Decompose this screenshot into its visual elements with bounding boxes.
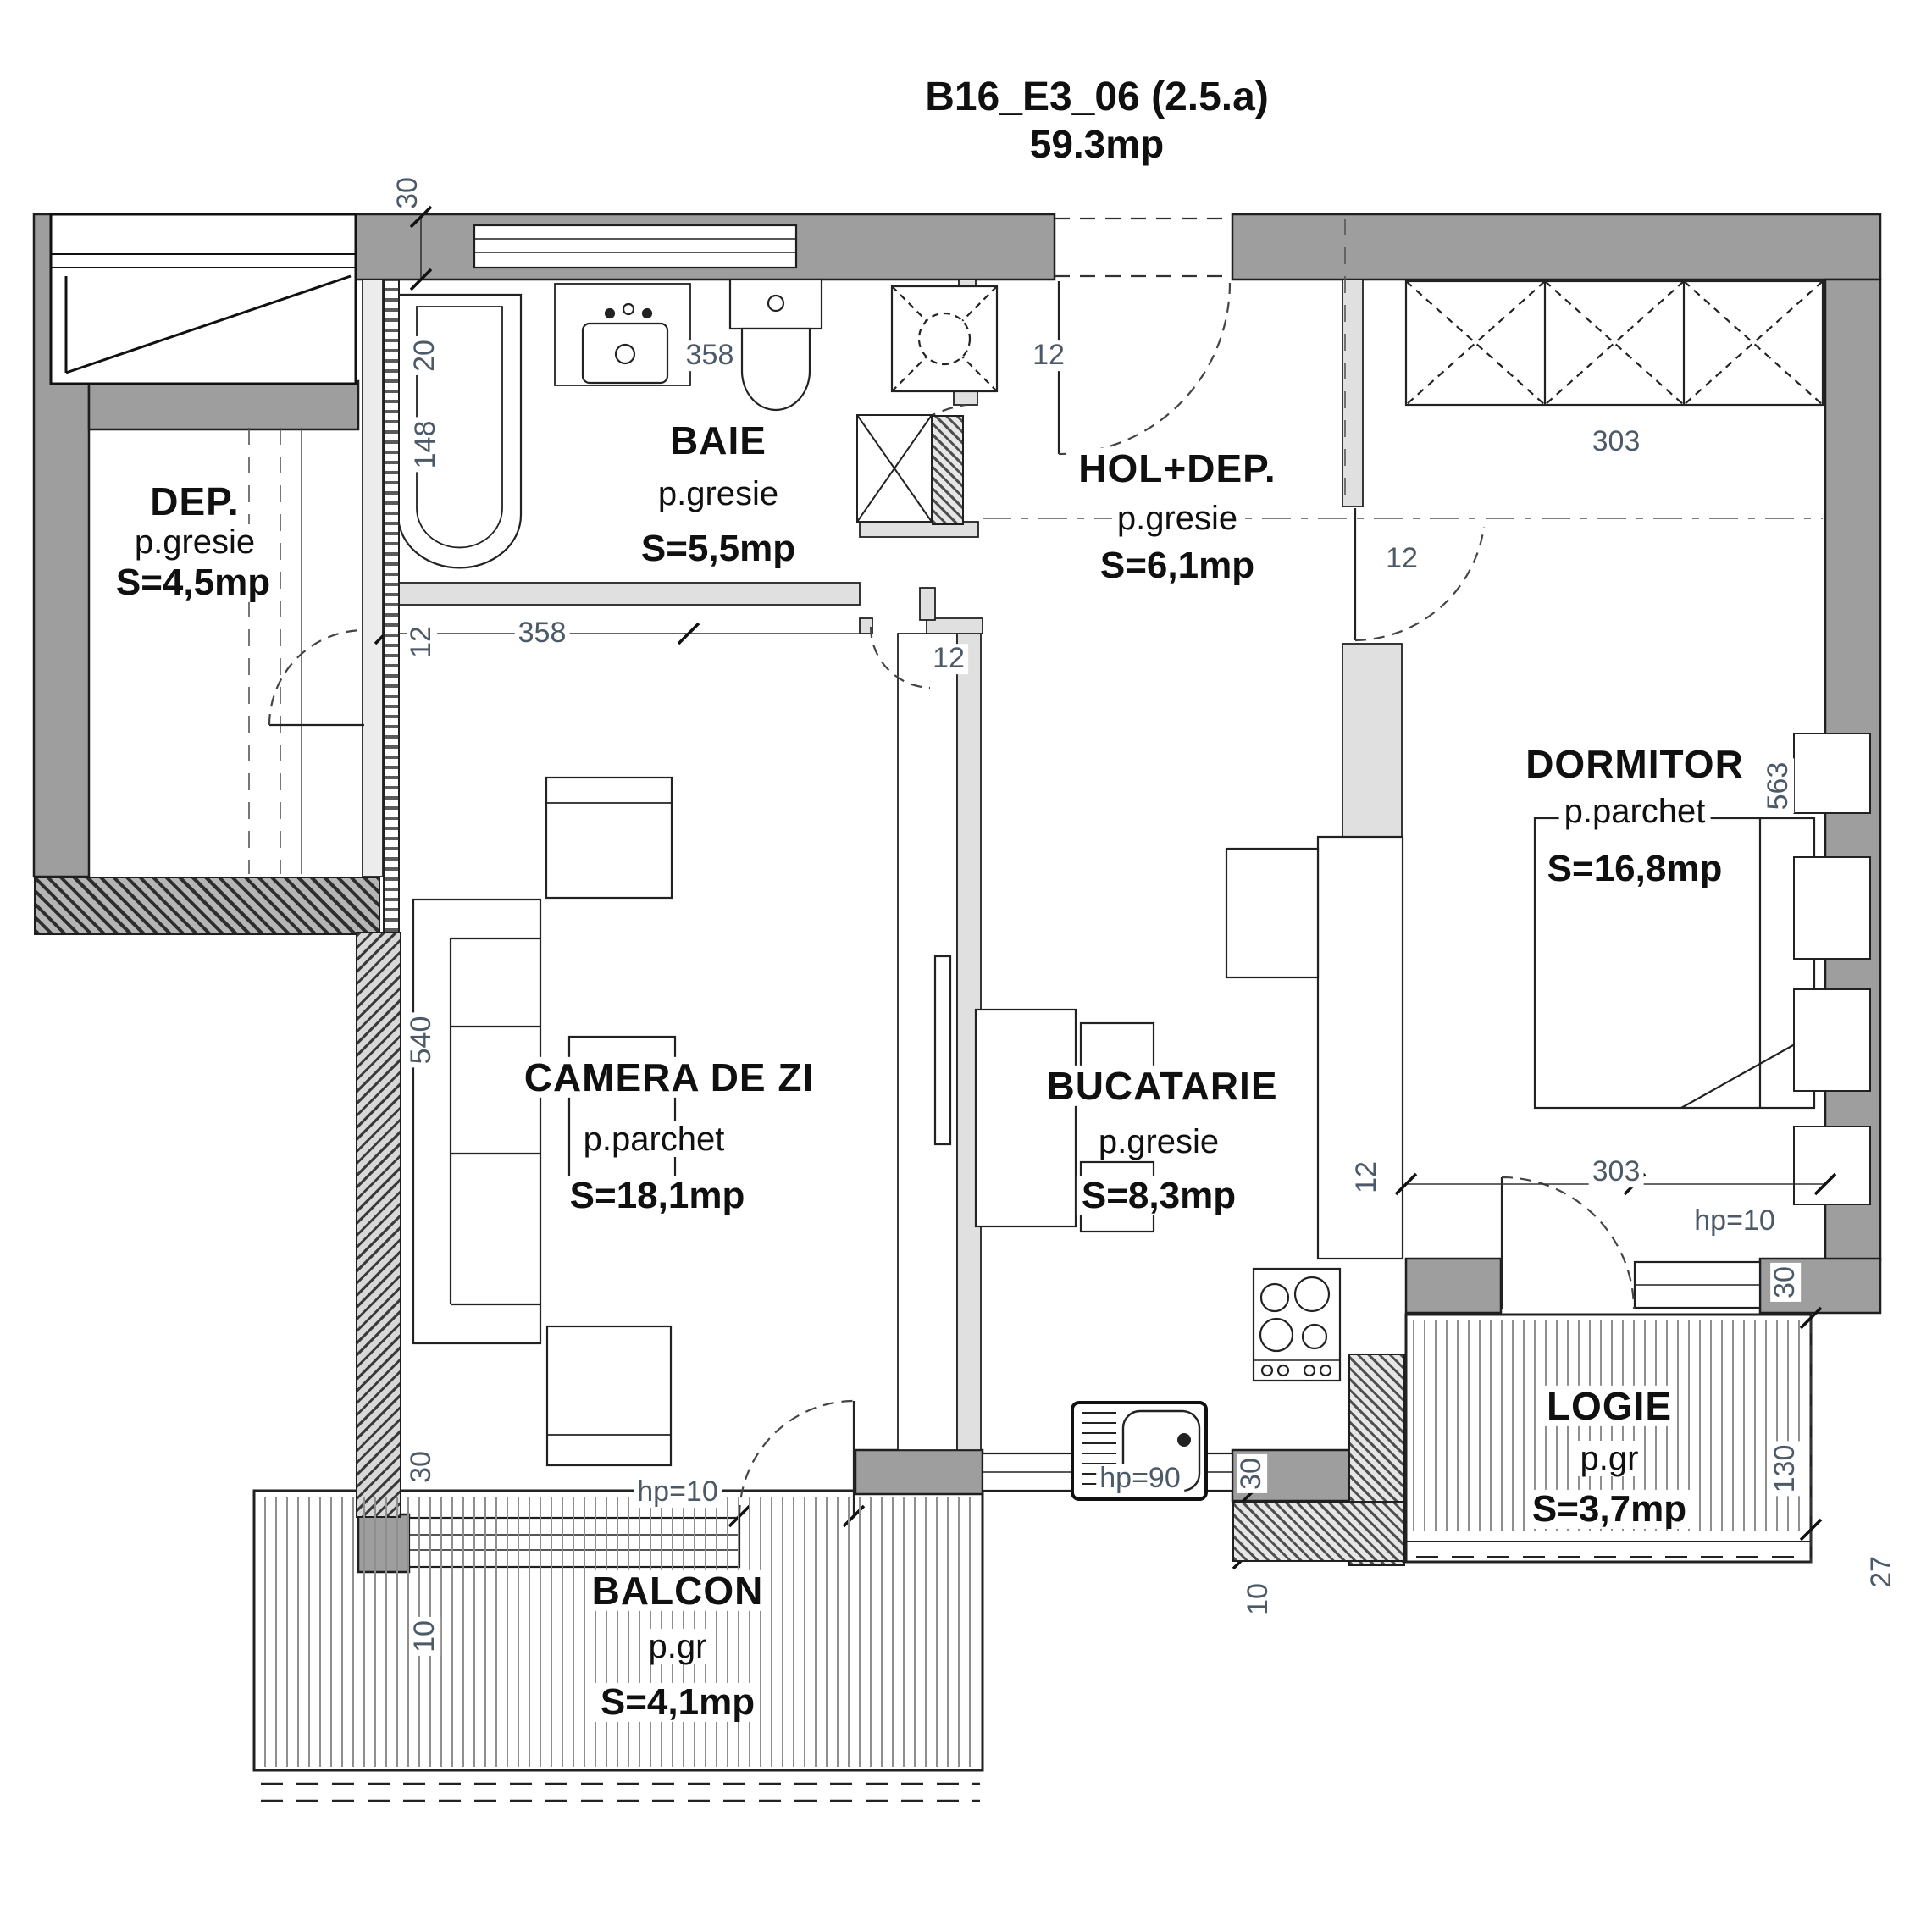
room-area-logie: S=3,7mp [1527,1490,1691,1529]
hatched-wall-living-left [356,932,401,1518]
dim-wardrobe-303: 303 [1589,427,1644,457]
room-floor-dep: p.gresie [130,524,260,560]
room-floor-baie: p.gresie [653,476,783,512]
room-label-logie: LOGIE [1542,1386,1677,1426]
room-label-dormitor: DORMITOR [1520,744,1749,784]
dim-dorm-door-12: 12 [1382,544,1421,574]
dim-living-30: 30 [407,1448,437,1486]
room-label-dep: DEP. [145,481,244,522]
room-label-bucatarie: BUCATARIE [1041,1066,1282,1106]
dim-living-358: 358 [515,618,570,649]
dim-bath-wall-12: 12 [407,623,437,662]
room-area-baie: S=5,5mp [636,529,800,568]
room-area-balcon: S=4,1mp [595,1683,760,1722]
room-area-dormitor: S=16,8mp [1542,850,1728,888]
dim-tub-148: 148 [411,418,441,473]
dim-wall-top-left: 30 [393,174,423,213]
dim-kitchen-wall-12: 12 [1352,1158,1382,1197]
sofa [413,900,540,1343]
dim-dorm-563: 563 [1763,759,1794,814]
balcony-decking [264,1497,980,1767]
room-floor-camera: p.parchet [578,1121,730,1157]
room-label-balcon: BALCON [587,1570,769,1611]
stairwell [51,214,356,384]
room-floor-balcon: p.gr [644,1629,712,1664]
wardrobe [1406,281,1823,405]
dim-dorm-hp10: hp=10 [1691,1206,1779,1237]
stove [1254,1269,1340,1381]
room-area-bucatarie: S=8,3mp [1077,1176,1241,1215]
room-area-hol: S=6,1mp [1095,546,1259,585]
dim-living-hp10: hp=10 [634,1477,722,1508]
insulation-strip [383,280,400,932]
dim-dorm-303: 303 [1589,1157,1644,1187]
dim-bath-20: 20 [410,336,440,375]
room-label-baie: BAIE [665,420,772,461]
dim-logie-27: 27 [1867,1553,1897,1592]
dim-balcon-10: 10 [410,1617,440,1656]
dim-kitchen-10: 10 [1243,1580,1274,1619]
dim-living-540: 540 [407,1013,437,1068]
armchair-bottom [547,1326,671,1465]
dim-kitchen-30: 30 [1237,1454,1267,1493]
dim-sink-hp90: hp=90 [1096,1464,1184,1494]
room-floor-logie: p.gr [1575,1441,1644,1476]
dim-logie-130: 130 [1770,1442,1801,1497]
dim-kitchen-door-12: 12 [929,644,968,674]
dim-logie-30: 30 [1770,1263,1801,1302]
room-area-camera: S=18,1mp [565,1176,750,1215]
room-area-dep: S=4,5mp [111,563,275,602]
dim-bath-358: 358 [683,340,738,371]
tv [935,956,950,1144]
vent-shaft [857,415,932,522]
toilet [730,280,822,410]
shower [892,286,997,391]
armchair-top [546,778,672,898]
room-floor-hol: p.gresie [1112,501,1243,536]
room-label-camera: CAMERA DE ZI [519,1057,820,1098]
hatched-wall-kitchen-bottom [1232,1501,1405,1562]
fridge [1226,849,1318,977]
bathroom-sink [555,284,690,385]
room-floor-bucatarie: p.gresie [1093,1124,1224,1160]
floor-plan: B16_E3_06 (2.5.a) 59.3mp BAIE p.gresie S… [0,0,1932,1932]
room-floor-dormitor: p.parchet [1559,794,1711,829]
room-label-hol: HOL+DEP. [1073,448,1281,489]
hatched-wall-dep-bottom [34,877,380,935]
hatched-shaft-wall [932,415,964,525]
plan-title: B16_E3_06 (2.5.a) [920,76,1274,119]
kitchen-table [976,1010,1076,1226]
plan-area: 59.3mp [1025,124,1170,164]
dim-entrance-12: 12 [1029,340,1068,371]
